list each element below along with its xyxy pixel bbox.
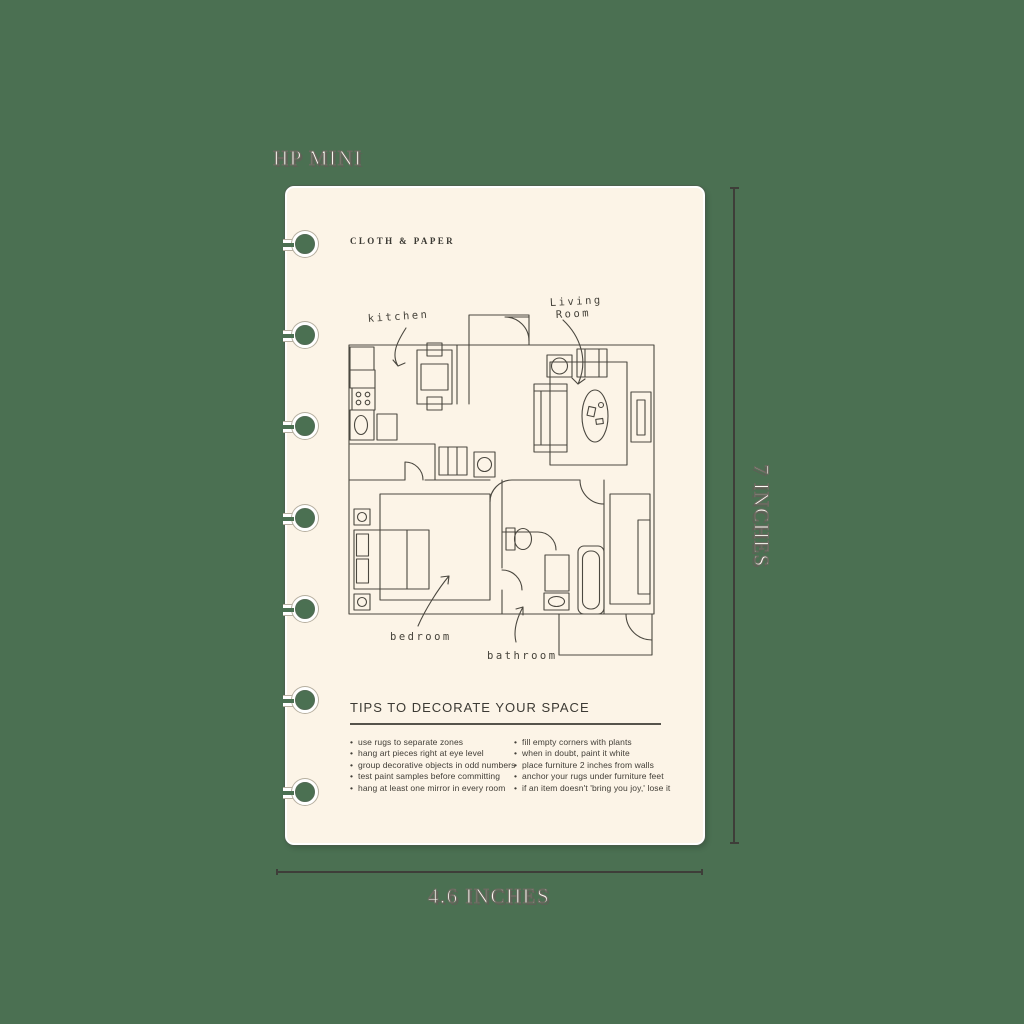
living-room-furniture <box>534 349 651 604</box>
tip-item: fill empty corners with plants <box>514 737 672 748</box>
hole-ring <box>292 779 318 805</box>
hole-ring <box>292 413 318 439</box>
tip-item: when in doubt, paint it white <box>514 748 672 759</box>
hole-slit-gap <box>283 425 294 429</box>
hole-ring <box>292 505 318 531</box>
tips-lists: use rugs to separate zones hang art piec… <box>350 737 680 794</box>
label-living-room-line1: Living <box>550 294 603 309</box>
hole-slit-gap <box>283 699 294 703</box>
hole-ring <box>292 596 318 622</box>
product-mockup-canvas: HP MINI CLOTH & PAPER <box>0 0 1024 1024</box>
tips-list-right: fill empty corners with plants when in d… <box>514 737 672 794</box>
tip-item: anchor your rugs under furniture feet <box>514 771 672 782</box>
tips-list-left: use rugs to separate zones hang art piec… <box>350 737 508 794</box>
label-living-room-line2: Room <box>556 307 592 321</box>
label-bedroom: bedroom <box>390 631 452 643</box>
binding-hole <box>283 594 321 624</box>
width-dimension-label: 4.6 INCHES <box>428 884 550 909</box>
brand-logo-text: CLOTH & PAPER <box>350 236 455 246</box>
binding-hole <box>283 503 321 533</box>
hole-slit-gap <box>283 608 294 612</box>
tip-item: hang at least one mirror in every room <box>350 783 508 794</box>
tips-heading: TIPS TO DECORATE YOUR SPACE <box>350 700 590 715</box>
tip-item: place furniture 2 inches from walls <box>514 760 672 771</box>
binding-hole <box>283 320 321 350</box>
label-bathroom: bathroom <box>487 650 558 662</box>
tip-item: hang art pieces right at eye level <box>350 748 508 759</box>
floor-plan-sketch: kitchen Living Room bedroom bathroom <box>342 288 672 673</box>
hole-slit-gap <box>283 243 294 247</box>
hole-slit-gap <box>283 791 294 795</box>
height-measure-line <box>733 187 735 844</box>
planner-page: CLOTH & PAPER <box>285 186 705 845</box>
height-dimension-label: 7 INCHES <box>749 464 774 568</box>
label-kitchen: kitchen <box>367 309 429 325</box>
binding-hole <box>283 777 321 807</box>
width-measure-line <box>276 871 703 873</box>
hole-slit-gap <box>283 517 294 521</box>
hole-slit-gap <box>283 334 294 338</box>
binding-hole <box>283 229 321 259</box>
tip-item: test paint samples before committing <box>350 771 508 782</box>
tip-item: use rugs to separate zones <box>350 737 508 748</box>
binding-hole <box>283 685 321 715</box>
hole-ring <box>292 231 318 257</box>
binding-hole <box>283 411 321 441</box>
size-name-label: HP MINI <box>273 146 363 171</box>
bathroom-fixtures <box>506 528 604 614</box>
bedroom-furniture <box>354 494 490 610</box>
plan-walls <box>349 315 654 655</box>
tip-item: group decorative objects in odd numbers <box>350 760 508 771</box>
label-arrows <box>393 320 585 642</box>
kitchen-furniture <box>350 343 495 477</box>
tip-item: if an item doesn't 'bring you joy,' lose… <box>514 783 672 794</box>
hole-ring <box>292 322 318 348</box>
hole-ring <box>292 687 318 713</box>
tips-heading-rule <box>350 723 661 725</box>
